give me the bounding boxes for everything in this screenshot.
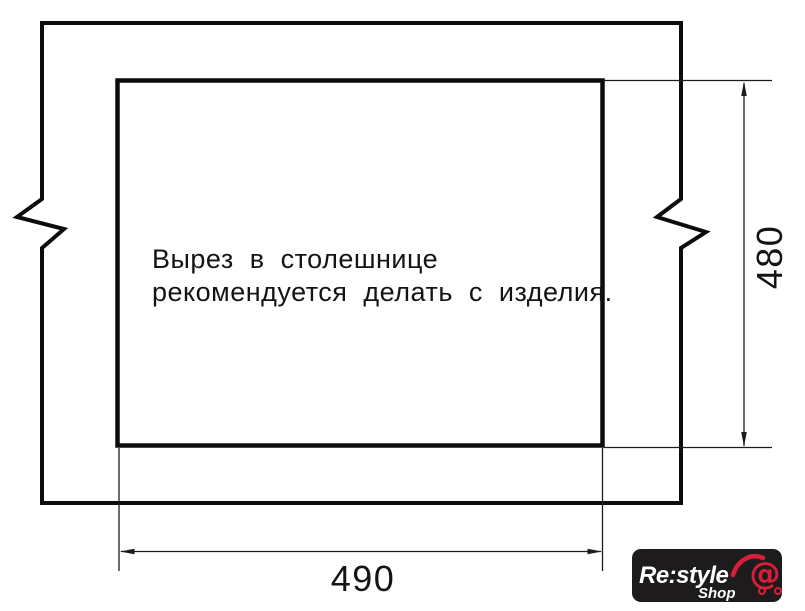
height-dimension-label: 480	[749, 225, 790, 290]
arrowhead-up-icon	[741, 82, 747, 97]
logo-badge: Re:style Shop @	[632, 549, 782, 602]
cutout-diagram: Вырез в столешнице рекомендуется делать …	[0, 0, 805, 611]
cutout-note-line1: Вырез в столешнице	[152, 244, 438, 274]
cutout-note-line2: рекомендуется делать с изделия.	[152, 277, 613, 307]
arrowhead-left-icon	[120, 549, 135, 555]
technical-drawing-page: Вырез в столешнице рекомендуется делать …	[0, 0, 805, 611]
arrowhead-right-icon	[588, 549, 603, 555]
cart-at-glyph: @	[750, 556, 781, 592]
logo-shop-text: Shop	[698, 585, 736, 602]
width-dimension-label: 490	[331, 558, 396, 599]
arrowhead-down-icon	[741, 432, 747, 447]
